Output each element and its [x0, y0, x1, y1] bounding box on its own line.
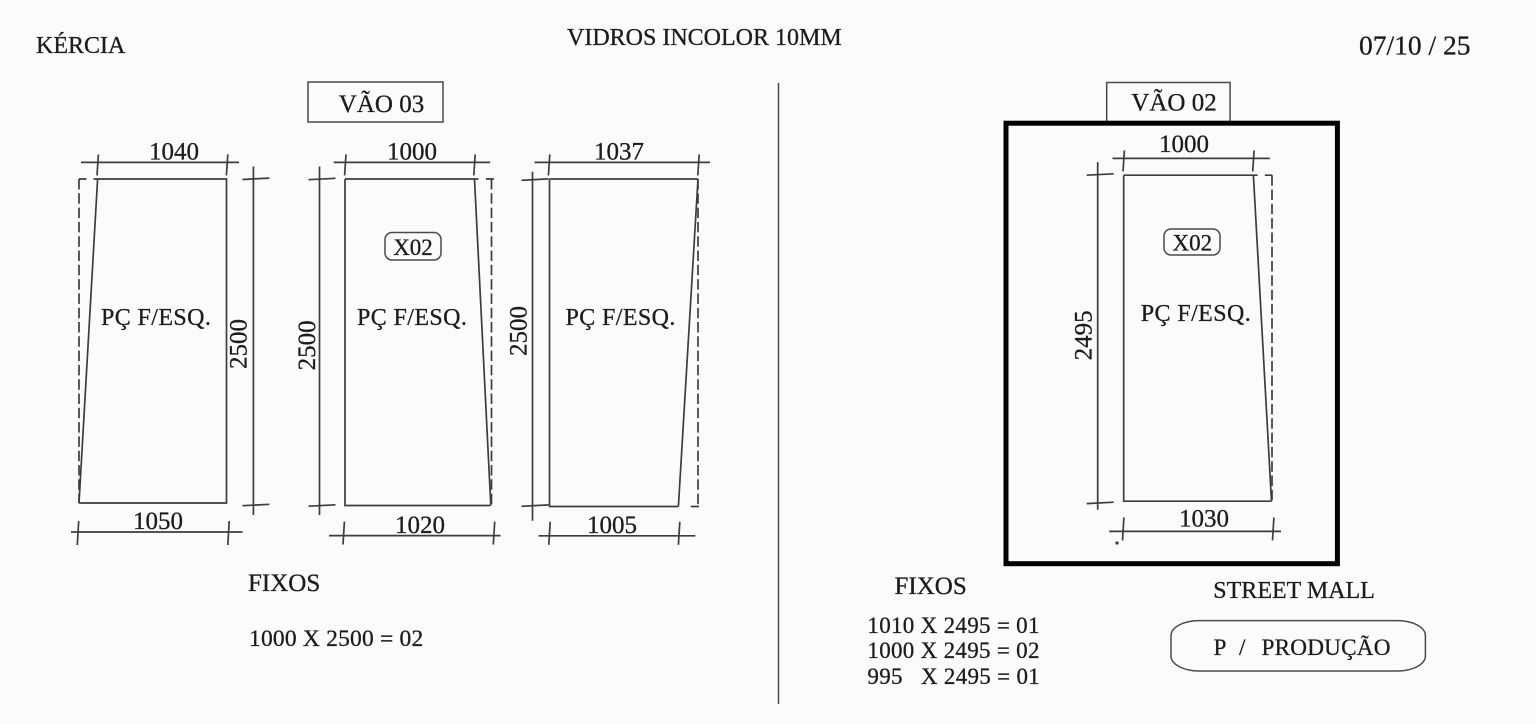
svg-text:FIXOS: FIXOS: [895, 573, 967, 600]
svg-text:STREET MALL: STREET MALL: [1213, 578, 1375, 604]
svg-text:07/10 / 25: 07/10 / 25: [1359, 30, 1471, 61]
svg-text:1000 X 2495 = 02: 1000 X 2495 = 02: [867, 638, 1039, 663]
svg-text:2500: 2500: [226, 319, 253, 369]
svg-text:1000: 1000: [1159, 131, 1209, 158]
svg-text:X02: X02: [393, 235, 433, 260]
svg-text:VÃO 02: VÃO 02: [1131, 89, 1216, 117]
svg-text:1010 X 2495 = 01: 1010 X 2495 = 01: [867, 613, 1039, 638]
svg-text:PÇ F/ESQ.: PÇ F/ESQ.: [566, 305, 676, 331]
svg-text:P/PRODUÇÃO: P/PRODUÇÃO: [1214, 635, 1391, 661]
svg-text:1030: 1030: [1179, 506, 1229, 533]
svg-text:1000 X 2500 = 02: 1000 X 2500 = 02: [249, 626, 423, 652]
svg-text:995 X 2495 = 01: 995 X 2495 = 01: [867, 664, 1040, 689]
svg-text:2500: 2500: [506, 306, 533, 356]
svg-text:PÇ F/ESQ.: PÇ F/ESQ.: [357, 305, 467, 331]
svg-text:2495: 2495: [1071, 310, 1098, 360]
svg-text:X02: X02: [1172, 231, 1212, 256]
svg-text:1050: 1050: [133, 508, 183, 535]
svg-text:PÇ F/ESQ.: PÇ F/ESQ.: [1141, 301, 1251, 327]
svg-text:PÇ F/ESQ.: PÇ F/ESQ.: [101, 305, 211, 331]
svg-text:FIXOS: FIXOS: [248, 570, 320, 597]
svg-text:VIDROS INCOLOR 10MM: VIDROS INCOLOR 10MM: [567, 25, 842, 51]
svg-text:1037: 1037: [594, 139, 644, 166]
svg-text:1020: 1020: [395, 512, 445, 539]
svg-text:1000: 1000: [387, 139, 437, 166]
svg-text:KÉRCIA: KÉRCIA: [36, 33, 126, 59]
svg-text:1005: 1005: [587, 512, 637, 539]
svg-text:2500: 2500: [294, 320, 321, 370]
svg-text:1040: 1040: [149, 139, 199, 166]
svg-text:VÃO 03: VÃO 03: [339, 90, 424, 118]
